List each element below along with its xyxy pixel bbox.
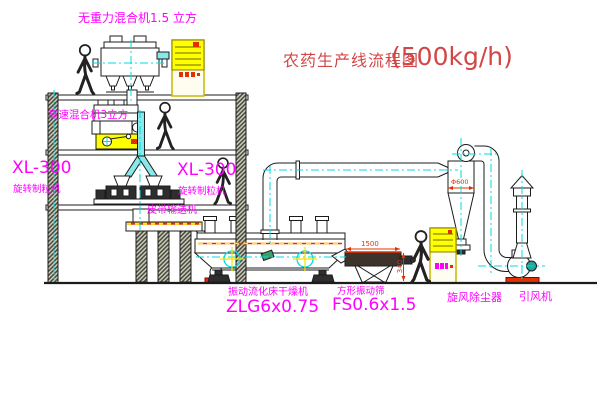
label-granulator-right-model: XL-300 [177,162,236,179]
label-granulator-right-name: 旋转制粒机 [178,187,226,197]
label-belt-conveyor: 皮带输送机 [147,206,197,216]
dim-sieve-length: 1500 [361,241,379,248]
high-speed-mixer [92,100,142,149]
process-flow-diagram: 农药生产线流程图 (500kg/h) 无重力混合机1.5 立方 高速混合机3立方… [0,0,600,403]
person-figure [77,45,94,94]
vibrating-sieve [345,247,415,282]
label-dryer-model: ZLG6x0.75 [226,299,319,316]
label-granulator-left-model: XL-300 [12,160,71,177]
granulators [94,176,184,204]
diagram-title-capacity: (500kg/h) [391,44,513,69]
fan-inlet-duct [475,146,513,272]
person-figure [157,103,173,149]
label-granulator-left-name: 旋转制粒机 [13,185,61,195]
label-high-speed-mixer: 高速混合机3立方 [48,110,128,121]
person-figure [412,231,430,282]
label-sieve-model: FS0.6x1.5 [332,297,416,314]
dim-cyclone-diameter: Φ600 [451,179,469,186]
fluid-bed-dryer [195,217,352,283]
label-gravity-mixer: 无重力混合机1.5 立方 [78,12,197,24]
building-column-right [236,93,246,283]
dim-sieve-height: 340 [397,260,404,273]
label-fan: 引风机 [519,291,552,302]
exhaust-duct [261,161,448,240]
control-cabinet-right [430,228,456,283]
control-cabinet-top [172,40,204,96]
label-cyclone: 旋风除尘器 [447,292,502,303]
